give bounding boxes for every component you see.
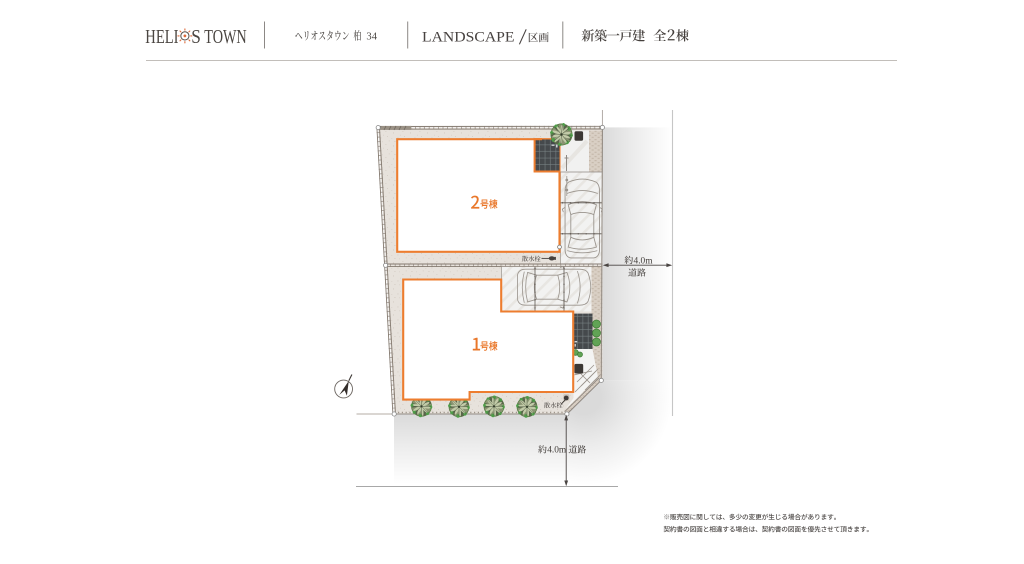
- svg-text:LANDSCAPE: LANDSCAPE: [422, 30, 515, 46]
- svg-text:HELI: HELI: [145, 26, 178, 48]
- svg-text:4.0m: 4.0m: [547, 446, 567, 456]
- svg-text:34: 34: [366, 32, 377, 43]
- svg-text:4.0m: 4.0m: [634, 256, 654, 266]
- svg-text:TOWN: TOWN: [204, 26, 246, 48]
- svg-text:S: S: [191, 26, 201, 48]
